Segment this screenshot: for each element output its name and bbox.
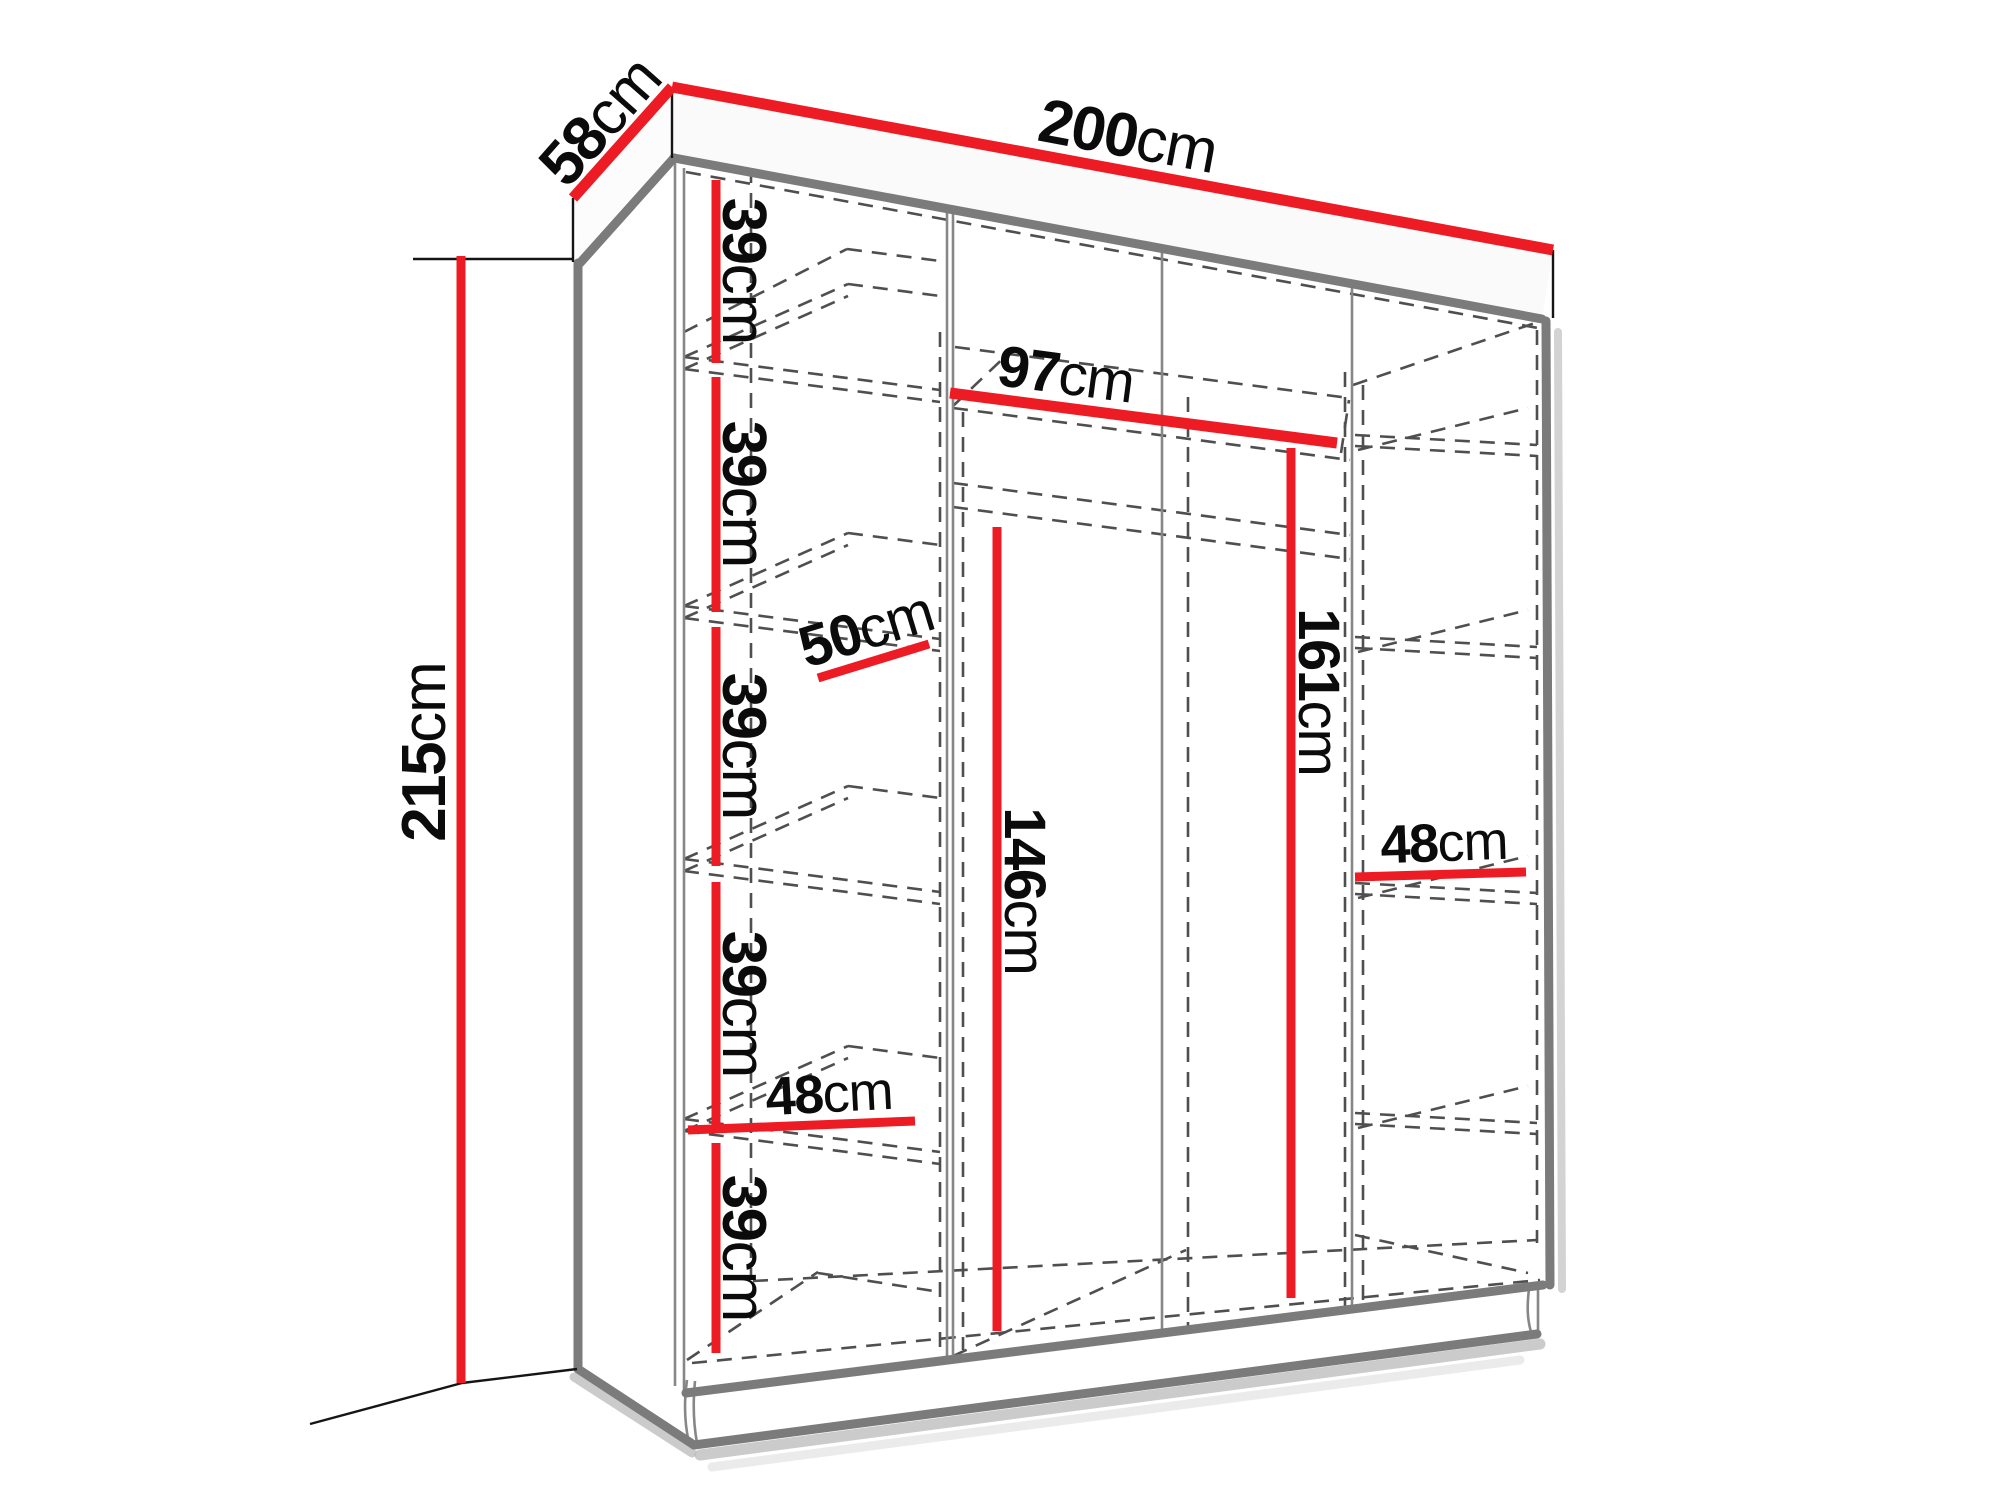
dimension-label-shelf-gap-1: 39cm [710, 198, 779, 345]
dimension-label-shelf-gap-4: 39cm [710, 931, 779, 1078]
dimension-label-right-column-width: 48cm [1379, 811, 1508, 875]
diagram-canvas: 58cm 200cm 215cm 39cm 39cm 39cm 39cm 39c… [0, 0, 2000, 1500]
dimension-label-height-under-top-shelf: 161cm [1287, 608, 1352, 776]
dimension-label-shelf-gap-3: 39cm [710, 673, 779, 820]
dimension-label-shelf-gap-5: 39cm [710, 1175, 779, 1322]
left-side-face [578, 163, 675, 1386]
dimension-label-height-under-rod: 146cm [993, 807, 1058, 975]
right-front-edge [1546, 321, 1550, 1285]
left-bottom-edge [578, 1369, 694, 1445]
wardrobe-dimension-diagram: 58cm 200cm 215cm 39cm 39cm 39cm 39cm 39c… [0, 0, 2000, 1500]
dimension-label-height: 215cm [390, 662, 459, 842]
height-extension-bottom [462, 1369, 577, 1383]
floor-line [310, 1383, 462, 1424]
dimension-label-shelf-gap-2: 39cm [710, 421, 779, 568]
dimension-label-left-column-width: 48cm [764, 1061, 894, 1128]
